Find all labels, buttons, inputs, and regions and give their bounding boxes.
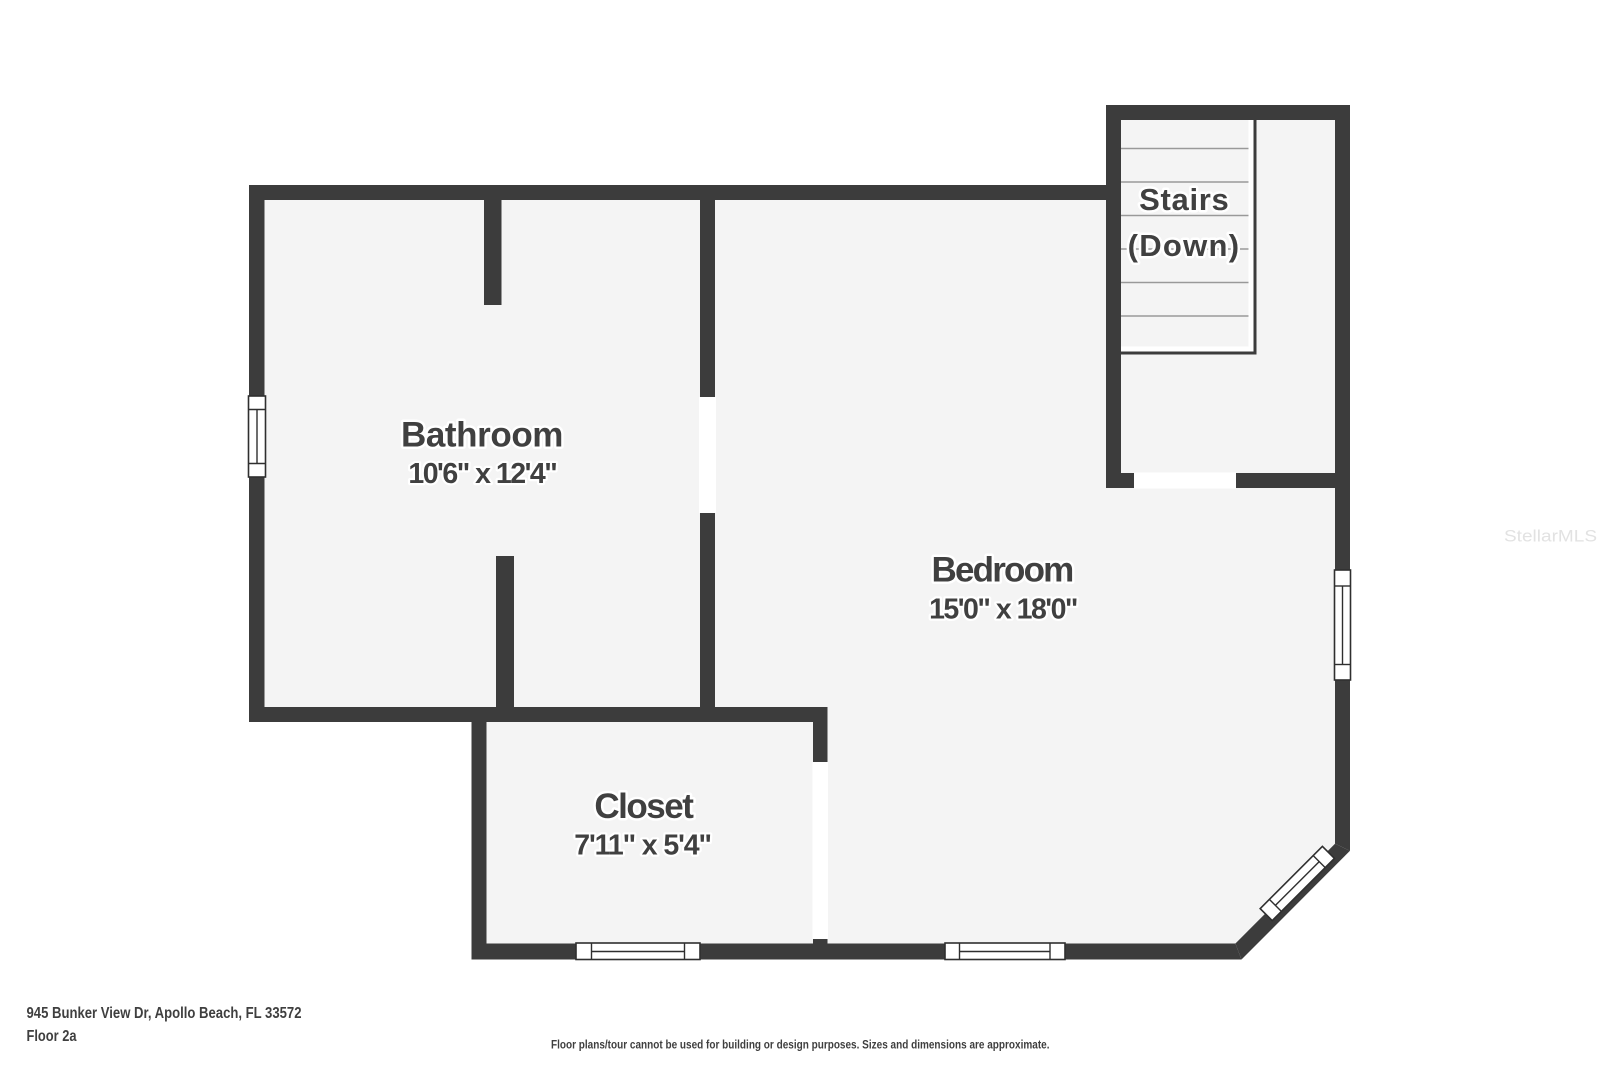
svg-text:15'0" x 18'0": 15'0" x 18'0" <box>929 594 1077 626</box>
svg-text:Bathroom: Bathroom <box>401 416 563 455</box>
svg-text:Closet: Closet <box>594 787 694 826</box>
svg-text:Stairs: Stairs <box>1139 182 1229 217</box>
svg-text:Floor plans/tour cannot be use: Floor plans/tour cannot be used for buil… <box>551 1038 1050 1052</box>
svg-text:Floor 2a: Floor 2a <box>27 1028 77 1045</box>
svg-text:945 Bunker View Dr, Apollo Bea: 945 Bunker View Dr, Apollo Beach, FL 335… <box>27 1005 302 1022</box>
svg-text:StellarMLS: StellarMLS <box>1504 527 1597 546</box>
svg-text:(Down): (Down) <box>1128 228 1241 263</box>
svg-text:Bedroom: Bedroom <box>931 551 1072 590</box>
svg-text:7'11" x 5'4": 7'11" x 5'4" <box>574 830 711 862</box>
svg-text:10'6" x 12'4": 10'6" x 12'4" <box>408 458 556 490</box>
